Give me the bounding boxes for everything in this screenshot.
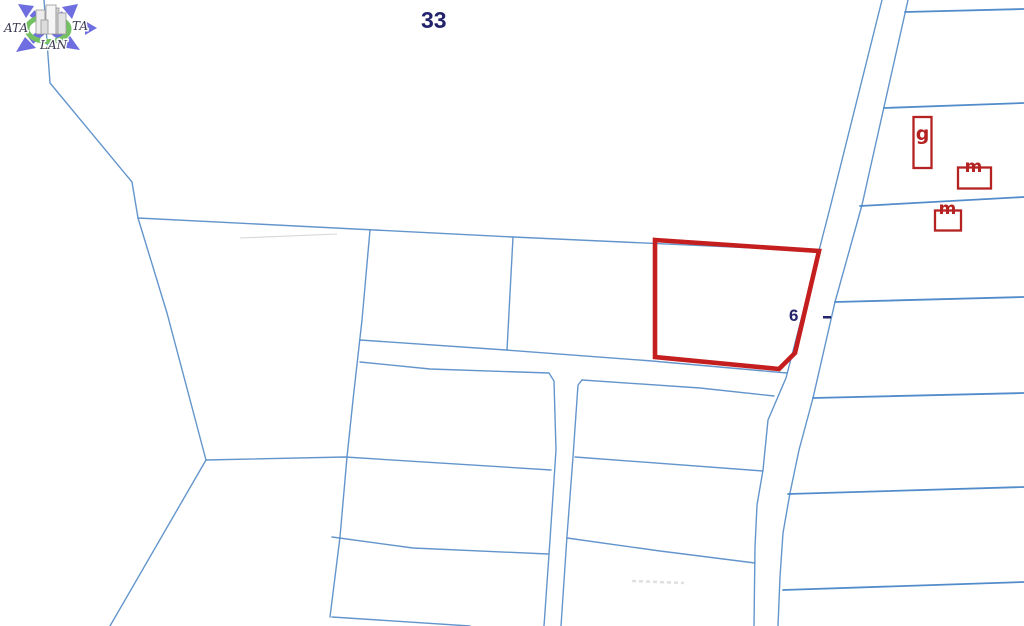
partial-label-dash <box>823 316 831 319</box>
parcel-boundary-line <box>567 538 755 563</box>
faint-parallel-line <box>240 234 337 238</box>
building-type-letter: m <box>965 157 983 177</box>
parcel-boundary-line <box>206 457 551 470</box>
strip-parcel-dividers <box>783 9 1024 590</box>
parcel-boundary-line <box>110 460 206 626</box>
logo-buildings-icon <box>36 5 66 34</box>
parcel-boundaries <box>44 0 819 626</box>
faint-illegible-text <box>632 581 684 583</box>
parcel-boundary-line <box>575 457 763 471</box>
parcel-boundary-line <box>835 297 1024 302</box>
building-type-letter: m <box>939 199 957 219</box>
parcel-boundary-line <box>788 487 1024 494</box>
road-edge <box>561 380 582 626</box>
logo-text-right: TA <box>72 19 88 33</box>
road-edge <box>754 0 882 626</box>
parcel-boundary-line <box>783 582 1024 590</box>
building-mark-m1: m <box>958 157 991 189</box>
parcel-boundary-line <box>332 617 470 626</box>
logo-text-bottom: LAN <box>39 38 68 52</box>
parcel-boundary-line <box>138 218 206 460</box>
watermark-logo: ATA TA LAN <box>3 4 97 52</box>
parcel-boundary-line <box>813 393 1024 398</box>
logo-text-left: ATA <box>3 21 28 35</box>
roads <box>360 0 908 626</box>
building-mark-g: g <box>914 117 932 168</box>
cadastral-map: 6 g m m 33 <box>0 0 1024 626</box>
parcel-boundary-line <box>332 537 548 554</box>
parcel-boundary-line <box>884 103 1024 108</box>
selected-parcel-outline[interactable] <box>655 240 819 369</box>
parcel-boundary-line <box>905 9 1024 12</box>
road-edge <box>582 380 774 396</box>
building-type-letter: g <box>916 123 930 145</box>
block-number-label: 33 <box>421 7 447 33</box>
parcel-boundary-line <box>330 230 370 617</box>
road-edge <box>360 362 556 626</box>
building-mark-m2: m <box>935 199 961 231</box>
map-canvas[interactable]: 6 g m m 33 <box>0 0 1024 626</box>
parcel-boundary-line <box>507 237 513 350</box>
parcel-number-partial-label: 6 <box>789 306 798 325</box>
